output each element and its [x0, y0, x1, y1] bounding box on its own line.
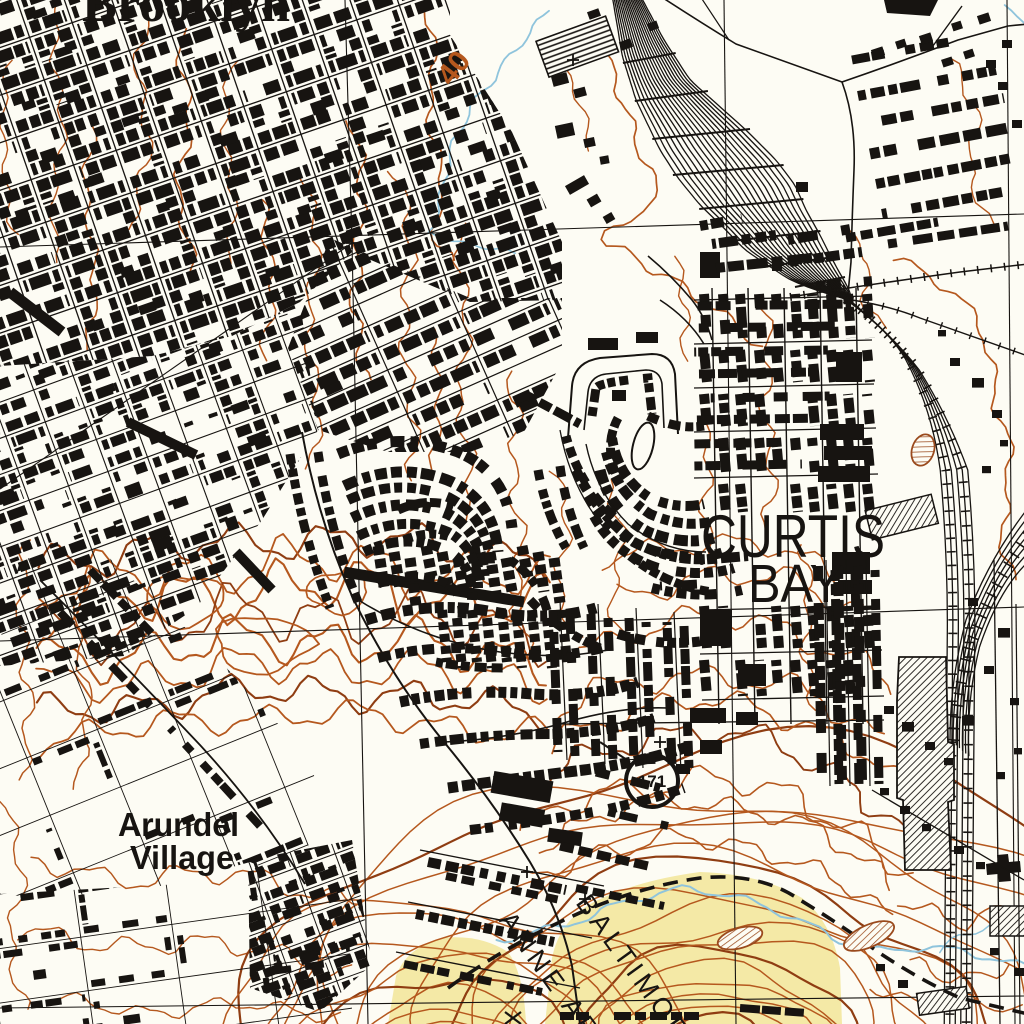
svg-text:171: 171 [638, 772, 666, 791]
svg-text:BAY: BAY [748, 554, 842, 614]
svg-text:Village: Village [130, 839, 234, 876]
svg-text:Arundel: Arundel [118, 806, 239, 843]
svg-text:Brooklyn: Brooklyn [82, 0, 290, 33]
